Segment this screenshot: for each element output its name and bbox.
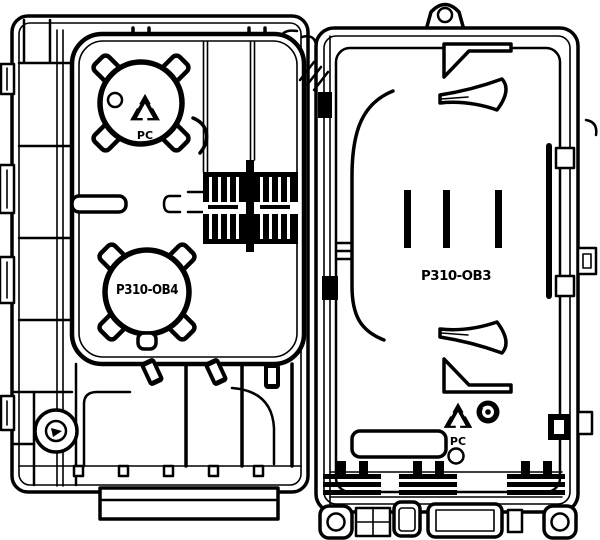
technical-drawing: PC P310-OB4 (0, 0, 600, 540)
material-code-label: PC (137, 129, 153, 142)
latch-catch (548, 412, 592, 440)
label-recess (352, 431, 446, 457)
latch-tab (578, 248, 596, 274)
cable-port-wide (428, 504, 502, 537)
screw-head-icon (477, 401, 500, 424)
left-panel: PC P310-OB4 (0, 16, 308, 519)
enclosure-drawing: PC P310-OB4 (0, 0, 600, 540)
cable-port (394, 502, 420, 536)
pilot-hole (449, 449, 464, 464)
splice-holder-divider (246, 160, 254, 252)
cable-port-small (508, 510, 522, 532)
cable-clamps (323, 461, 565, 497)
material-code-label: PC (450, 435, 466, 448)
cable-port-grid (356, 508, 390, 536)
cover-model-label: P310-OB3 (421, 269, 491, 284)
foot-hole (552, 514, 569, 531)
hinge-knuckle (322, 276, 338, 300)
spool-bottom-tab (138, 333, 156, 349)
spool-model-label: P310-OB4 (116, 283, 178, 298)
foot-hole (328, 514, 345, 531)
mounting-plate (100, 488, 278, 519)
edge-hook (586, 120, 596, 135)
eyelet-hole (438, 8, 452, 22)
mounting-eyelet-icon (426, 5, 464, 31)
fiber-guide-tab (72, 196, 126, 212)
fiber-spool-bottom: P310-OB4 (98, 243, 197, 349)
spool-hole (108, 93, 122, 107)
right-panel: P310-OB3 PC (300, 5, 596, 539)
hinge-knuckle (318, 92, 332, 118)
